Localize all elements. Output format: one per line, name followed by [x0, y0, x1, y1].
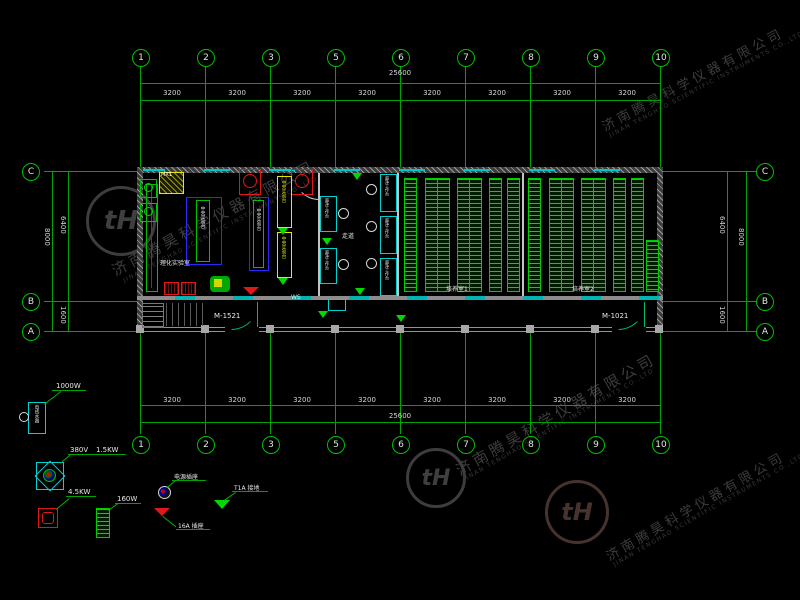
- culture-rack: [507, 178, 520, 292]
- grid-line: [335, 66, 336, 168]
- side-bench: [146, 184, 158, 292]
- dim-bay: 3200: [352, 89, 382, 97]
- dim-bay: 3200: [287, 89, 317, 97]
- culture-rack: [646, 240, 659, 292]
- air-outlet-icon: [352, 173, 362, 180]
- legend-socket-label: 电源插座: [174, 472, 198, 481]
- leader-line: [167, 481, 175, 488]
- watermark-cn: 济南腾昊科学仪器有限公司: [452, 348, 660, 480]
- grid-bubble-top: 3: [262, 49, 280, 67]
- legend-rack: [96, 508, 110, 538]
- clean-bench-label: 超净工作台: [384, 260, 390, 280]
- dim-bay: 3200: [612, 89, 642, 97]
- wall-partition: [397, 173, 399, 296]
- column: [201, 325, 209, 333]
- legend-socket-icon: [158, 486, 171, 499]
- column: [526, 325, 534, 333]
- dim-bay: 3200: [482, 89, 512, 97]
- column: [331, 325, 339, 333]
- grid-bubble-bottom: 2: [197, 436, 215, 454]
- legend-sterilizer-inner: [42, 512, 54, 524]
- grid-bubble-bottom: 6: [392, 436, 410, 454]
- dim-height-total: 8000: [43, 228, 51, 246]
- legend-socket16-icon: [154, 508, 170, 516]
- dim-line: [140, 100, 661, 101]
- side-bench-line: [151, 186, 152, 288]
- grid-line: [44, 301, 137, 302]
- dim-line: [140, 83, 661, 84]
- dim-height-upper: 6400: [59, 216, 67, 234]
- room-label-corridor: 走道: [342, 231, 354, 240]
- room-label-lab: 理化实验室: [160, 258, 190, 267]
- air-outlet-icon: [396, 315, 406, 322]
- dim-total-top: 25600: [380, 69, 420, 77]
- grid-line: [595, 66, 596, 168]
- grid-line: [660, 66, 661, 168]
- air-outlet-icon: [278, 278, 288, 285]
- vent-fan: [144, 183, 153, 192]
- leader-line: [44, 391, 61, 405]
- legend-fan-rotor: [43, 469, 56, 482]
- door-label-right: M-1021: [602, 312, 628, 320]
- bench-label: 中央实验台: [199, 206, 205, 229]
- grid-bubble-right: C: [756, 163, 774, 181]
- culture-rack: [489, 178, 502, 292]
- leader-line: [162, 516, 176, 527]
- room-label-culture2: 培养室2: [572, 284, 594, 293]
- watermark-logo: tH: [406, 448, 466, 508]
- leader-line: [66, 496, 96, 497]
- grid-line: [44, 171, 137, 172]
- legend-heater-valve: [19, 412, 29, 422]
- grid-line: [595, 331, 596, 434]
- grid-bubble-top: 1: [132, 49, 150, 67]
- leader-line: [108, 503, 118, 511]
- air-outlet-icon: [318, 311, 328, 318]
- dim-line: [746, 171, 747, 332]
- watermark-en: JINAN TENGHAO SCIENTIFIC INSTRUMENTS CO.…: [462, 367, 656, 483]
- grid-line: [335, 331, 336, 434]
- window-band-top: [139, 169, 661, 171]
- air-outlet-icon: [278, 228, 288, 235]
- autoclave-fan: [295, 174, 309, 188]
- sink-box: [328, 299, 346, 311]
- culture-rack: [404, 178, 417, 292]
- column: [591, 325, 599, 333]
- dim-height-lower: 1600: [718, 306, 726, 324]
- dim-bay: 3200: [547, 89, 577, 97]
- door-leaf: [257, 302, 258, 327]
- legend-rack-power: 160W: [117, 495, 137, 503]
- grid-bubble-bottom: 5: [327, 436, 345, 454]
- sterilizer: [181, 282, 196, 295]
- lamp: [366, 221, 377, 232]
- ws-label: WS: [291, 294, 301, 301]
- legend-heater-power: 1000W: [56, 382, 81, 390]
- grid-bubble-bottom: 7: [457, 436, 475, 454]
- dim-line: [68, 171, 69, 332]
- dim-total-bottom: 25600: [380, 412, 420, 420]
- watermark-cn: 济南腾昊科学仪器有限公司: [598, 22, 787, 135]
- culture-rack: [613, 178, 626, 292]
- grid-bubble-top: 6: [392, 49, 410, 67]
- column: [655, 325, 663, 333]
- leader-line: [115, 503, 141, 504]
- dim-line: [140, 422, 661, 423]
- sterilizer: [164, 282, 179, 295]
- panel-label: MX1: [161, 172, 172, 178]
- leader-line: [224, 492, 236, 501]
- lamp: [366, 184, 377, 195]
- grid-line: [205, 66, 206, 168]
- clean-bench-label: 超净工作台: [324, 198, 330, 218]
- watermark-cn: 济南腾昊科学仪器有限公司: [602, 446, 788, 564]
- clean-bench-label: 超净工作台: [324, 250, 330, 270]
- leader-line: [60, 455, 71, 464]
- air-outlet-icon: [322, 238, 332, 245]
- culture-rack: [593, 178, 606, 292]
- watermark-logo: tH: [545, 480, 609, 544]
- culture-rack: [469, 178, 482, 292]
- grid-line: [270, 331, 271, 434]
- grid-line: [400, 66, 401, 168]
- leader-line: [52, 390, 86, 391]
- column: [461, 325, 469, 333]
- grid-line: [660, 331, 661, 434]
- dim-bay: 3200: [222, 396, 252, 404]
- legend-ground-icon: [214, 500, 230, 509]
- wall-partition: [522, 173, 524, 296]
- dim-line: [52, 171, 53, 332]
- dim-bay: 3200: [547, 396, 577, 404]
- legend-sterilizer-power: 4.5KW: [68, 488, 90, 496]
- grid-bubble-top: 9: [587, 49, 605, 67]
- legend-fan-voltage: 380V: [70, 446, 88, 454]
- grid-line: [663, 171, 756, 172]
- lamp: [338, 208, 349, 219]
- grid-line: [205, 331, 206, 434]
- legend-fan-power: 1.5KW: [96, 446, 118, 454]
- grid-bubble-left: A: [22, 323, 40, 341]
- dim-bay: 3200: [482, 396, 512, 404]
- cad-canvas: tH 济南腾昊科学仪器有限公司 JINAN TENGHAO SCIENTIFIC…: [0, 0, 800, 600]
- grid-line: [44, 331, 137, 332]
- leader-line: [56, 498, 70, 510]
- dim-bay: 3200: [222, 89, 252, 97]
- culture-rack: [631, 178, 644, 292]
- grid-line: [663, 301, 756, 302]
- autoclave-fan: [243, 174, 257, 188]
- grid-line: [530, 66, 531, 168]
- grid-bubble-top: 7: [457, 49, 475, 67]
- clean-bench-label: 超净工作台: [384, 176, 390, 196]
- dim-height-total: 8000: [737, 228, 745, 246]
- vent-fan: [144, 207, 153, 216]
- grid-line: [140, 331, 141, 434]
- dim-line: [727, 171, 728, 332]
- grid-line: [270, 66, 271, 168]
- dim-bay: 3200: [287, 396, 317, 404]
- culture-rack: [528, 178, 541, 292]
- legend-heater-label: 电热水器: [33, 405, 39, 423]
- lamp: [338, 259, 349, 270]
- grid-bubble-bottom: 3: [262, 436, 280, 454]
- lamp: [366, 258, 377, 269]
- culture-rack: [561, 178, 574, 292]
- dim-height-upper: 6400: [718, 216, 726, 234]
- dim-line: [140, 405, 661, 406]
- clean-bench-label: 超净工作台: [384, 218, 390, 238]
- grid-bubble-left: C: [22, 163, 40, 181]
- dim-bay: 3200: [157, 396, 187, 404]
- grid-bubble-bottom: 8: [522, 436, 540, 454]
- grid-bubble-top: 8: [522, 49, 540, 67]
- leader-line: [68, 454, 126, 455]
- air-outlet-icon: [355, 288, 365, 295]
- door-label-left: M-1521: [214, 312, 240, 320]
- watermark-en: JINAN TENGHAO SCIENTIFIC INSTRUMENTS CO.…: [608, 30, 800, 139]
- floor-socket-icon: [243, 287, 259, 295]
- grid-bubble-bottom: 10: [652, 436, 670, 454]
- column: [396, 325, 404, 333]
- watermark-en: JINAN TENGHAO SCIENTIFIC INSTRUMENTS CO.…: [612, 452, 800, 568]
- equipment-cart-top: [214, 279, 222, 287]
- column: [266, 325, 274, 333]
- dim-bay: 3200: [352, 396, 382, 404]
- grid-line: [465, 331, 466, 434]
- grid-line: [465, 66, 466, 168]
- fume-hood-label: 中央实验台: [280, 236, 286, 259]
- grid-bubble-top: 5: [327, 49, 345, 67]
- grid-line: [140, 66, 141, 168]
- grid-line: [530, 331, 531, 434]
- dim-height-lower: 1600: [59, 306, 67, 324]
- grid-bubble-top: 2: [197, 49, 215, 67]
- dim-bay: 3200: [417, 89, 447, 97]
- dim-bay: 3200: [612, 396, 642, 404]
- legend-ground-label: T1A 接地: [234, 483, 260, 492]
- bench-label: 中央实验台: [255, 208, 261, 231]
- grid-bubble-top: 10: [652, 49, 670, 67]
- grid-line: [663, 331, 756, 332]
- grid-bubble-bottom: 9: [587, 436, 605, 454]
- legend-socket16-label: 16A 插座: [178, 521, 204, 530]
- ramp: [166, 303, 208, 326]
- dim-bay: 3200: [417, 396, 447, 404]
- grid-bubble-left: B: [22, 293, 40, 311]
- culture-rack: [437, 178, 450, 292]
- wall-interior-b: [137, 296, 663, 300]
- dim-bay: 3200: [157, 89, 187, 97]
- fume-hood-label: 中央实验台: [280, 180, 286, 203]
- room-label-culture1: 培养室1: [446, 284, 468, 293]
- door-leaf: [644, 302, 645, 327]
- grid-bubble-right: B: [756, 293, 774, 311]
- stairs: [142, 303, 164, 328]
- grid-bubble-right: A: [756, 323, 774, 341]
- grid-bubble-bottom: 1: [132, 436, 150, 454]
